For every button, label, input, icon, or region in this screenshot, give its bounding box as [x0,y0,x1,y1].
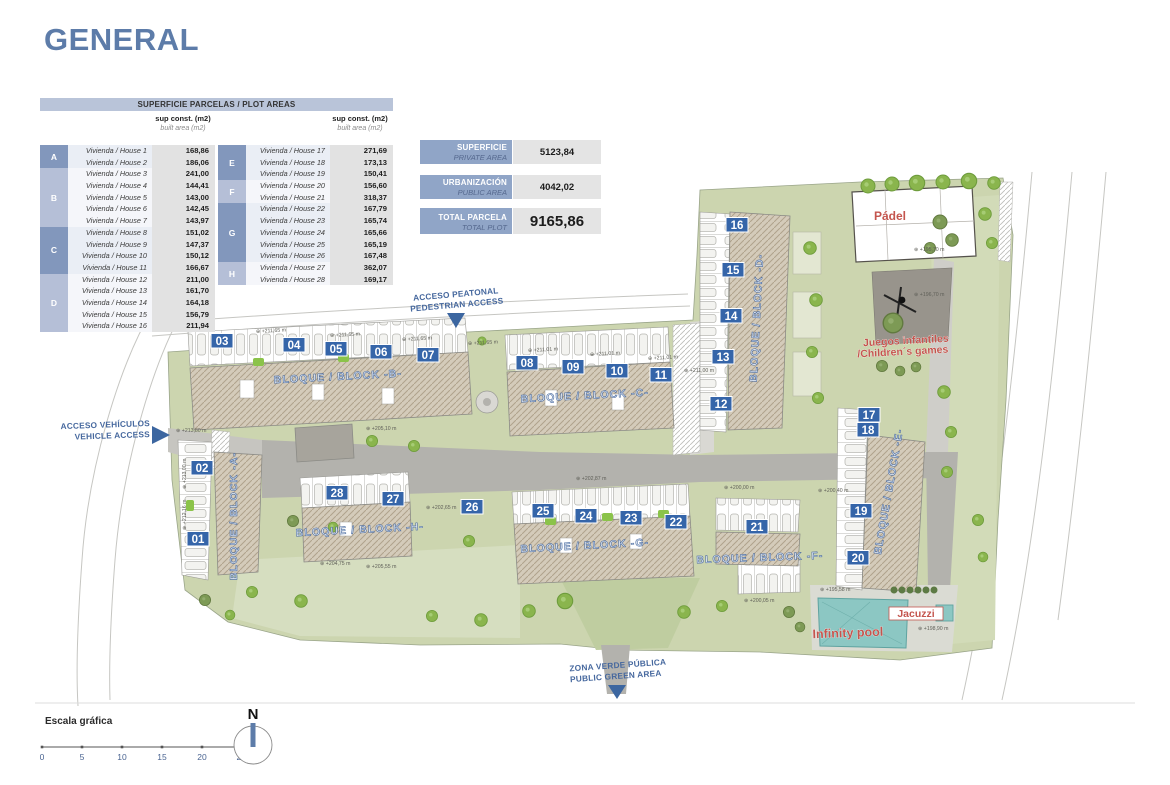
unit-badge-05: 05 [325,342,347,357]
unit-badge-12: 12 [710,397,732,412]
house-name: Vivienda / House 10 [68,250,152,262]
summary-total-plot: TOTAL PARCELA TOTAL PLOT 9165,86 [420,208,601,234]
elevation-label: ⊕ +196,70 m [914,292,944,298]
house-built-area: 211,94 [152,320,215,332]
svg-text:20: 20 [852,553,865,565]
house-built-area: 150,41 [330,168,393,180]
unit-badge-25: 25 [532,504,554,519]
play-structure-icon [899,297,906,304]
unit-badge-10: 10 [606,364,628,379]
unit-badge-20: 20 [847,551,869,566]
plaza-fountain [476,391,498,413]
house-built-area: 164,18 [152,297,215,309]
svg-text:14: 14 [725,311,738,323]
house-name: Vivienda / House 14 [68,297,152,309]
summary-public-area: URBANIZACIÓN PUBLIC AREA 4042,02 [420,175,601,199]
summary-total-value: 9165,86 [513,208,601,234]
summary-private-label-en: PRIVATE AREA [424,153,507,162]
house-name: Vivienda / House 27 [246,262,330,274]
svg-text:22: 22 [670,517,683,529]
svg-text:09: 09 [567,362,580,374]
svg-text:12: 12 [715,399,728,411]
elevation-label: ⊕ +200,00 m [724,485,754,491]
north-label: N [248,706,259,723]
unit-badge-27: 27 [382,492,404,507]
house-built-area: 211,00 [152,274,215,286]
svg-text:24: 24 [580,511,593,523]
svg-text:17: 17 [863,410,876,422]
svg-text:27: 27 [387,494,400,506]
svg-text:18: 18 [862,425,875,437]
unit-badge-11: 11 [650,368,672,383]
group-letter-H: H [218,262,246,285]
svg-text:10: 10 [611,366,624,378]
unit-badge-07: 07 [417,348,439,363]
svg-text:16: 16 [731,220,744,232]
house-name: Vivienda / House 26 [246,250,330,262]
elevation-label: ⊕ +198,90 m [918,626,948,632]
elevation-label: ⊕ +200,05 m [744,598,774,604]
svg-text:04: 04 [288,340,301,352]
svg-text:02: 02 [196,463,209,475]
house-built-area: 167,48 [330,250,393,262]
svg-text:13: 13 [717,352,730,364]
svg-text:03: 03 [216,336,229,348]
svg-text:21: 21 [751,522,764,534]
svg-text:26: 26 [466,502,479,514]
unit-badge-02: 02 [191,461,213,476]
group-letter-B: B [40,168,68,226]
group-letter-F: F [218,180,246,203]
group-letter-G: G [218,203,246,261]
house-name: Vivienda / House 13 [68,285,152,297]
padel-label: Pádel [874,209,906,223]
scale-label: Escala gráfica [45,716,113,727]
infinity-pool-label: Infinity pool [812,625,883,641]
unit-badge-28: 28 [326,486,348,501]
house-built-area: 144,41 [152,180,215,192]
summary-private-area: SUPERFICIE PRIVATE AREA 5123,84 [420,140,601,164]
house-name: Vivienda / House 21 [246,192,330,204]
house-name: Vivienda / House 11 [68,262,152,274]
house-built-area: 143,00 [152,192,215,204]
unit-badge-17: 17 [858,408,880,423]
unit-badge-23: 23 [620,511,642,526]
summary-total-label-en: TOTAL PLOT [424,223,507,232]
group-letter-C: C [40,227,68,274]
house-name: Vivienda / House 1 [68,145,152,157]
house-built-area: 150,12 [152,250,215,262]
block-label-a: BLOQUE / BLOCK -A- [228,452,240,580]
house-built-area: 186,06 [152,157,215,169]
plot-areas-table-header: SUPERFICIE PARCELAS / PLOT AREAS [40,98,393,111]
sup-const-header-right: sup const. (m2) [325,114,395,123]
scale-tick-15: 15 [157,752,167,762]
house-name: Vivienda / House 3 [68,168,152,180]
house-built-area: 362,07 [330,262,393,274]
elevation-label: ⊕ +195,70 m [914,247,944,253]
summary-total-label-es: TOTAL PARCELA [424,213,507,222]
elevation-label: ⊕ +202,87 m [576,476,606,482]
house-built-area: 168,86 [152,145,215,157]
built-area-header-right: built area (m2) [325,125,395,132]
svg-text:05: 05 [330,344,343,356]
scale-tick-5: 5 [80,752,85,762]
unit-badge-13: 13 [712,350,734,365]
house-built-area: 151,02 [152,227,215,239]
house-built-area: 156,79 [152,309,215,321]
svg-text:19: 19 [855,506,868,518]
house-built-area: 167,79 [330,203,393,215]
unit-badge-24: 24 [575,509,597,524]
house-name: Vivienda / House 25 [246,239,330,251]
house-name: Vivienda / House 15 [68,309,152,321]
house-built-area: 165,19 [330,239,393,251]
house-built-area: 241,00 [152,168,215,180]
unit-badge-01: 01 [187,532,209,547]
sup-const-header-left: sup const. (m2) [148,114,218,123]
vehicle-access-arrow-icon [152,426,170,444]
summary-public-label-es: URBANIZACIÓN [424,178,507,187]
svg-text:07: 07 [422,350,435,362]
striped-walkway [673,323,700,455]
svg-text:01: 01 [192,534,205,546]
unit-badge-09: 09 [562,360,584,375]
unit-badge-06: 06 [370,345,392,360]
house-name: Vivienda / House 7 [68,215,152,227]
unit-badge-15: 15 [722,263,744,278]
elevation-label: ⊕ +202,65 m [426,505,456,511]
plot-areas-table-left: AVivienda / House 1168,86Vivienda / Hous… [40,145,215,332]
house-built-area: 156,60 [330,180,393,192]
terraces [793,232,821,396]
built-area-header-left: built area (m2) [148,125,218,132]
group-letter-D: D [40,274,68,332]
house-name: Vivienda / House 18 [246,157,330,169]
svg-text:06: 06 [375,347,388,359]
summary-public-label-en: PUBLIC AREA [424,188,507,197]
house-name: Vivienda / House 22 [246,203,330,215]
unit-badge-16: 16 [726,218,748,233]
house-name: Vivienda / House 16 [68,320,152,332]
svg-text:28: 28 [331,488,344,500]
house-built-area: 318,37 [330,192,393,204]
house-name: Vivienda / House 20 [246,180,330,192]
elevation-label: ⊕ +195,58 m [820,587,850,593]
page-title: GENERAL [44,22,199,58]
svg-text:15: 15 [727,265,740,277]
vehicle-access-label-en: VEHICLE ACCESS [74,429,150,442]
unit-badge-03: 03 [211,334,233,349]
house-built-area: 166,67 [152,262,215,274]
svg-text:25: 25 [537,506,550,518]
group-letter-A: A [40,145,68,168]
house-name: Vivienda / House 5 [68,192,152,204]
unit-badge-18: 18 [857,423,879,438]
north-arrow: N [234,706,272,764]
house-built-area: 165,74 [330,215,393,227]
elevation-label: ⊕ +212,16 m [182,500,188,530]
summary-private-label-es: SUPERFICIE [424,143,507,152]
house-name: Vivienda / House 8 [68,227,152,239]
elevation-label: ⊕ +204,75 m [320,561,350,567]
house-built-area: 165,66 [330,227,393,239]
house-built-area: 161,70 [152,285,215,297]
house-built-area: 147,37 [152,239,215,251]
unit-badge-21: 21 [746,520,768,535]
house-name: Vivienda / House 19 [246,168,330,180]
house-built-area: 271,69 [330,145,393,157]
house-name: Vivienda / House 9 [68,239,152,251]
house-name: Vivienda / House 12 [68,274,152,286]
house-built-area: 173,13 [330,157,393,169]
house-name: Vivienda / House 4 [68,180,152,192]
unit-badge-22: 22 [665,515,687,530]
house-built-area: 143,97 [152,215,215,227]
unit-badge-14: 14 [720,309,742,324]
scale-tick-10: 10 [117,752,127,762]
elevation-label: ⊕ +211,00 m [684,368,714,374]
house-name: Vivienda / House 28 [246,274,330,286]
house-built-area: 169,17 [330,274,393,286]
house-name: Vivienda / House 6 [68,203,152,215]
entrance-structure [295,424,354,462]
unit-badge-19: 19 [850,504,872,519]
summary-public-value: 4042,02 [513,175,601,199]
scale-bar: Escala gráfica 0 5 10 15 20 25 m [40,716,256,762]
elevation-label: ⊕ +213,00 m [182,459,188,489]
house-name: Vivienda / House 24 [246,227,330,239]
scale-tick-0: 0 [40,752,45,762]
elevation-label: ⊕ +205,10 m [366,426,396,432]
svg-text:11: 11 [655,370,668,382]
elevation-label: ⊕ +213,80 m [176,428,206,434]
unit-badge-08: 08 [516,356,538,371]
unit-badge-04: 04 [283,338,305,353]
scale-tick-20: 20 [197,752,207,762]
house-name: Vivienda / House 2 [68,157,152,169]
svg-text:23: 23 [625,513,638,525]
house-name: Vivienda / House 23 [246,215,330,227]
plot-areas-table-right: EVivienda / House 17271,69Vivienda / Hou… [218,145,393,285]
unit-badge-26: 26 [461,500,483,515]
summary-private-value: 5123,84 [513,140,601,164]
elevation-label: ⊕ +205,55 m [366,564,396,570]
svg-text:08: 08 [521,358,534,370]
house-name: Vivienda / House 17 [246,145,330,157]
elevation-label: ⊕ +200,40 m [818,488,848,494]
jacuzzi-label: Jacuzzi [897,608,934,620]
group-letter-E: E [218,145,246,180]
house-built-area: 142,45 [152,203,215,215]
